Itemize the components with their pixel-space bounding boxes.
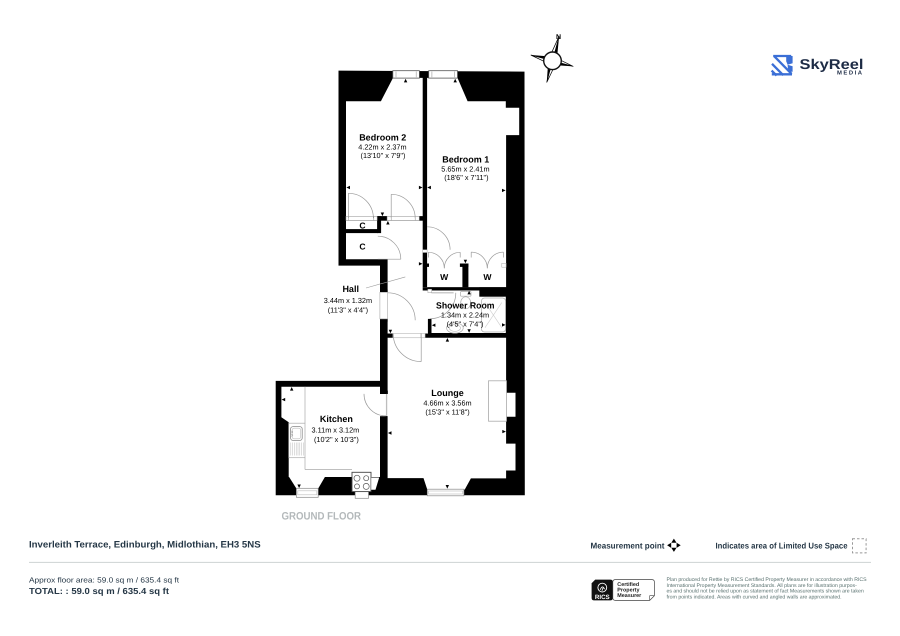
svg-text:(13'10" x 7'9"): (13'10" x 7'9") — [361, 151, 406, 160]
svg-text:W: W — [440, 272, 449, 282]
svg-text:Approx floor area: 59.0 sq m /: Approx floor area: 59.0 sq m / 635.4 sq … — [29, 575, 179, 584]
svg-text:MEDIA: MEDIA — [837, 70, 863, 77]
svg-text:(10'2" x 10'3"): (10'2" x 10'3") — [314, 435, 359, 444]
svg-text:(11'3" x 4'4"): (11'3" x 4'4") — [328, 305, 368, 314]
svg-text:Measurement point: Measurement point — [591, 540, 665, 550]
svg-text:C: C — [359, 242, 365, 252]
svg-text:Shower Room: Shower Room — [436, 300, 495, 310]
svg-text:Lounge: Lounge — [431, 388, 464, 398]
svg-text:C: C — [359, 221, 365, 231]
svg-text:Hall: Hall — [342, 284, 359, 294]
svg-text:(15'3" x 11'8"): (15'3" x 11'8") — [425, 408, 469, 417]
svg-text:W: W — [483, 272, 492, 282]
svg-text:N: N — [556, 34, 561, 41]
svg-text:3.11m x 3.12m: 3.11m x 3.12m — [312, 426, 360, 435]
svg-text:4.66m x 3.56m: 4.66m x 3.56m — [423, 398, 471, 407]
svg-text:from points indicated. Areas w: from points indicated. Areas with curved… — [667, 594, 842, 600]
svg-text:Kitchen: Kitchen — [320, 414, 353, 424]
svg-text:Measurer: Measurer — [617, 593, 642, 599]
svg-text:Bedroom 1: Bedroom 1 — [442, 155, 489, 165]
svg-text:3.44m x 1.32m: 3.44m x 1.32m — [324, 296, 372, 305]
svg-text:1.34m x 2.24m: 1.34m x 2.24m — [441, 311, 489, 320]
svg-text:RICS: RICS — [595, 594, 610, 601]
svg-text:(18'6" x 7'11"): (18'6" x 7'11") — [444, 173, 488, 182]
svg-text:GROUND FLOOR: GROUND FLOOR — [282, 511, 362, 523]
svg-text:Indicates area of Limited Use: Indicates area of Limited Use Space — [716, 540, 848, 550]
svg-text:Bedroom 2: Bedroom 2 — [359, 133, 406, 143]
svg-text:Inverleith Terrace, Edinburgh,: Inverleith Terrace, Edinburgh, Midlothia… — [29, 539, 261, 550]
svg-text:(4'5" x 7'4"): (4'5" x 7'4") — [447, 320, 484, 329]
svg-text:4.22m x 2.37m: 4.22m x 2.37m — [358, 143, 406, 152]
svg-text:TOTAL: : 59.0 sq m / 635.4 sq: TOTAL: : 59.0 sq m / 635.4 sq ft — [29, 586, 169, 596]
